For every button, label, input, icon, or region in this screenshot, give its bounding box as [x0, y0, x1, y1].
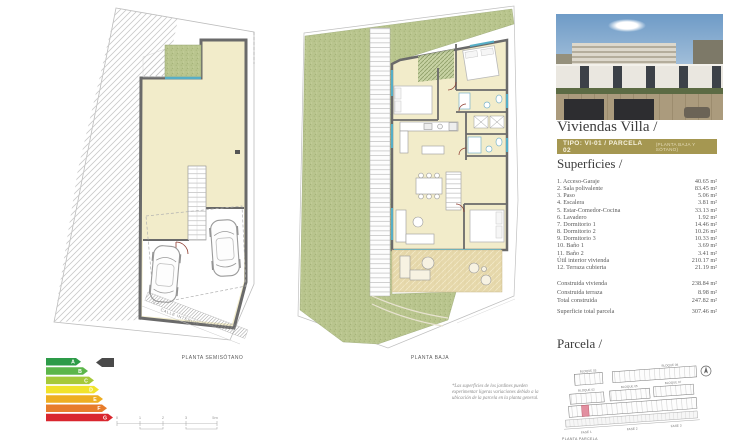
summary-label: Total construida	[557, 297, 597, 306]
superficie-row: 4. Escalera3.81 m²	[557, 199, 717, 206]
rating-pointer-icon	[96, 358, 114, 367]
superficie-label: 5. Estar-Comedor-Cocina	[557, 207, 620, 214]
parcela-site-plan: BLOQUE 03 BLOQUE 08 BLOQUE 02 BLOQUE 05 …	[556, 362, 740, 444]
floorplan-baja	[288, 0, 550, 352]
svg-text:E: E	[93, 397, 97, 403]
summary-row: Total construida247.82 m²	[557, 297, 717, 306]
staircase	[188, 166, 206, 240]
superficie-row: 9. Dormitorio 310.33 m²	[557, 235, 717, 242]
superficie-label: 3. Paso	[557, 192, 575, 199]
photo-cloud	[608, 19, 646, 32]
superficie-value: 10.26 m²	[695, 228, 717, 235]
svg-text:C: C	[84, 378, 88, 384]
superficie-label: 10. Baño 1	[557, 242, 584, 249]
svg-text:BLOQUE 08: BLOQUE 08	[661, 363, 678, 368]
summary-row: Construida vivienda238.84 m²	[557, 280, 717, 289]
svg-text:G: G	[103, 416, 107, 422]
svg-text:FASE 2: FASE 2	[627, 427, 638, 432]
superficie-label: 1. Acceso-Garaje	[557, 178, 600, 185]
total-row: Superficie total parcela307.46 m²	[557, 308, 717, 317]
svg-text:2: 2	[162, 415, 165, 420]
superficie-row: 3. Paso5.06 m²	[557, 192, 717, 199]
superficie-value: 3.41 m²	[698, 250, 717, 257]
superficie-value: 83.45 m²	[695, 185, 717, 192]
plan-label-baja: PLANTA BAJA	[380, 355, 480, 361]
svg-text:BLOQUE 03: BLOQUE 03	[580, 368, 597, 373]
summary-label: Construida vivienda	[557, 280, 607, 289]
superficie-row: 11. Baño 23.41 m²	[557, 250, 717, 257]
superficie-label: 6. Lavadero	[557, 214, 587, 221]
svg-text:0: 0	[116, 415, 119, 420]
svg-text:B: B	[78, 369, 82, 375]
superficie-label: 2. Sala polivalente	[557, 185, 603, 192]
superficie-row: 7. Dormitorio 114.46 m²	[557, 221, 717, 228]
page-title: Viviendas Villa /	[557, 119, 657, 136]
superficie-row: 5. Estar-Comedor-Cocina33.13 m²	[557, 207, 717, 214]
scale-bar: 0 1 2 3 5m	[113, 414, 223, 430]
svg-text:BLOQUE 05: BLOQUE 05	[621, 384, 638, 389]
summary-value: 238.84 m²	[692, 280, 717, 289]
bed-dormitorio1	[463, 46, 499, 81]
superficie-value: 40.65 m²	[695, 178, 717, 185]
superficie-value: 3.81 m²	[698, 199, 717, 206]
superficies-summary: Construida vivienda238.84 m² Construida …	[557, 280, 717, 306]
superficie-label: 11. Baño 2	[557, 250, 584, 257]
svg-text:BLOQUE 07: BLOQUE 07	[665, 380, 682, 385]
superficie-value: 14.46 m²	[695, 221, 717, 228]
superficies-total: Superficie total parcela307.46 m²	[557, 308, 717, 317]
superficies-heading: Superficies /	[557, 156, 622, 172]
photo-villas	[556, 66, 723, 90]
pillar	[235, 150, 240, 154]
summary-value: 247.82 m²	[692, 297, 717, 306]
summary-value: 8.98 m²	[698, 289, 717, 298]
svg-text:D: D	[89, 388, 93, 394]
bed-dormitorio2	[394, 86, 432, 114]
car-right	[209, 219, 242, 277]
highlighted-parcela	[581, 405, 589, 416]
superficie-value: 10.33 m²	[695, 235, 717, 242]
superficie-row: 6. Lavadero1.92 m²	[557, 214, 717, 221]
svg-text:5m: 5m	[212, 415, 218, 420]
superficie-value: 21.19 m²	[695, 264, 717, 271]
svg-text:1: 1	[139, 415, 142, 420]
svg-text:F: F	[97, 406, 100, 412]
superficie-label: 4. Escalera	[557, 199, 584, 206]
photo-car	[684, 107, 710, 118]
superficie-value: 210.17 m²	[692, 257, 717, 264]
svg-text:A: A	[71, 360, 75, 366]
superficie-row: 2. Sala polivalente83.45 m²	[557, 185, 717, 192]
banner-floors-label: (PLANTA BAJA Y SÓTANO)	[656, 142, 717, 152]
superficie-row: Útil interior vivienda210.17 m²	[557, 257, 717, 264]
superficie-row: 10. Baño 13.69 m²	[557, 242, 717, 249]
superficie-label: 8. Dormitorio 2	[557, 228, 596, 235]
superficies-list: 1. Acceso-Garaje40.65 m² 2. Sala polival…	[557, 178, 717, 271]
floorplan-semisotano: CALLE INTERIOR	[30, 4, 292, 356]
superficie-value: 5.06 m²	[698, 192, 717, 199]
svg-text:BLOQUE 02: BLOQUE 02	[578, 387, 595, 392]
parcela-heading: Parcela /	[557, 336, 602, 352]
superficie-row: 8. Dormitorio 210.26 m²	[557, 228, 717, 235]
superficie-label: 7. Dormitorio 1	[557, 221, 596, 228]
banner-type-label: TIPO: VI-01 / PARCELA 02	[563, 140, 649, 154]
superficie-value: 33.13 m²	[695, 207, 717, 214]
superficie-label: 12. Terraza cubierta	[557, 264, 606, 271]
superficie-label: Útil interior vivienda	[557, 257, 609, 264]
summary-label: Construida terraza	[557, 289, 603, 298]
superficie-value: 1.92 m²	[698, 214, 717, 221]
total-value: 307.46 m²	[692, 308, 717, 317]
type-banner: TIPO: VI-01 / PARCELA 02 (PLANTA BAJA Y …	[557, 139, 717, 154]
total-label: Superficie total parcela	[557, 308, 614, 317]
svg-text:3: 3	[185, 415, 188, 420]
summary-row: Construida terraza8.98 m²	[557, 289, 717, 298]
compass-icon	[701, 366, 711, 376]
parcela-caption: PLANTA PARCELA	[562, 437, 598, 441]
garden-footnote: *Las superficies de los jardines pueden …	[452, 384, 550, 401]
svg-text:FASE 1: FASE 1	[581, 430, 592, 435]
superficie-label: 9. Dormitorio 3	[557, 235, 596, 242]
superficie-row: 1. Acceso-Garaje40.65 m²	[557, 178, 717, 185]
photo-garage-door-left	[564, 99, 604, 120]
superficie-row: 12. Terraza cubierta21.19 m²	[557, 264, 717, 271]
svg-text:FASE 3: FASE 3	[671, 424, 682, 429]
photo-garage-door-right	[614, 99, 654, 120]
hero-photo	[556, 14, 723, 120]
exterior-staircase	[370, 28, 390, 296]
superficie-value: 3.69 m²	[698, 242, 717, 249]
garden-patch	[165, 45, 201, 77]
bed-dormitorio3	[470, 210, 504, 242]
terrace-deck	[392, 250, 502, 292]
dining-table	[416, 173, 442, 199]
